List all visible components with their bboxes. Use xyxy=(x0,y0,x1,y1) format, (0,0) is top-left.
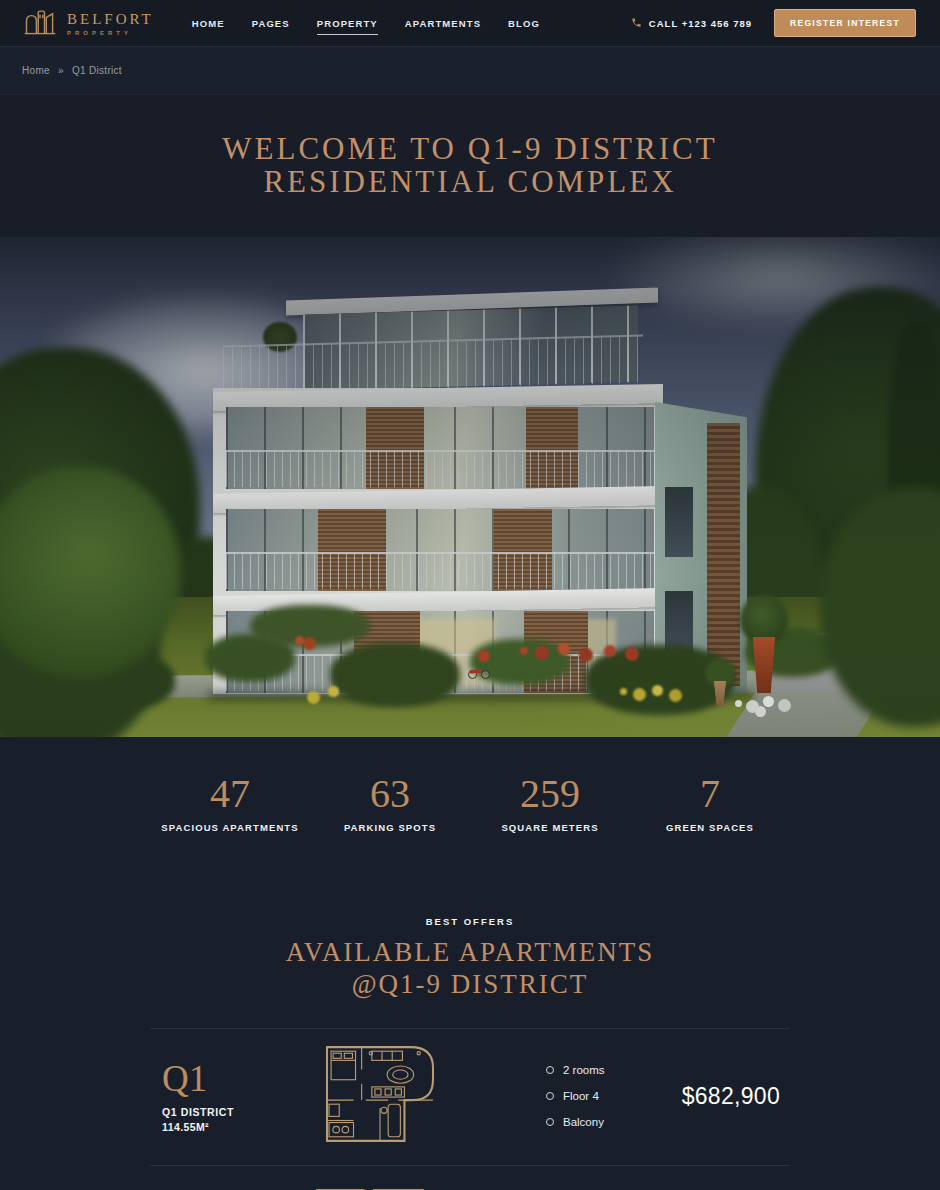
apartment-name: Q1 DISTRICT xyxy=(162,1106,312,1118)
floor-plan-thumbnail[interactable] xyxy=(312,1186,464,1190)
stat-value: 259 xyxy=(470,774,630,814)
apartment-code-link[interactable]: Q1 xyxy=(162,1060,312,1097)
top-navigation-bar: BELFORT PROPERTY HOME PAGES PROPERTY APA… xyxy=(0,0,940,47)
building-hero-image xyxy=(0,237,940,737)
call-label: CALL +123 456 789 xyxy=(649,18,752,29)
phone-icon xyxy=(631,14,642,32)
brand-name: BELFORT xyxy=(67,11,154,28)
breadcrumb-bar: Home » Q1 District xyxy=(0,47,940,95)
feature-item: Balcony xyxy=(546,1116,605,1128)
section-kicker: BEST OFFERS xyxy=(0,916,940,927)
stat-label: SPACIOUS APARTMENTS xyxy=(150,822,310,833)
breadcrumb-home-link[interactable]: Home xyxy=(22,65,50,76)
page-title: WELCOME TO Q1-9 DISTRICT RESIDENTIAL COM… xyxy=(0,132,940,199)
call-phone-link[interactable]: CALL +123 456 789 xyxy=(631,14,752,32)
stat-green-spaces: 7 GREEN SPACES xyxy=(630,774,790,833)
table-row[interactable]: Q1 Q1 DISTRICT 114.55M² xyxy=(150,1029,790,1166)
stat-value: 47 xyxy=(150,774,310,814)
buildings-logo-icon xyxy=(22,5,58,41)
offers-section: BEST OFFERS AVAILABLE APARTMENTS @Q1-9 D… xyxy=(0,870,940,1028)
register-interest-button[interactable]: REGISTER INTEREST xyxy=(774,9,916,37)
page-title-line2: RESIDENTIAL COMPLEX xyxy=(263,164,676,199)
feature-item: Floor 4 xyxy=(546,1090,605,1102)
apartment-features: 2 rooms Floor 4 Balcony xyxy=(546,1064,605,1128)
nav-item-property[interactable]: PROPERTY xyxy=(317,12,378,35)
nav-item-apartments[interactable]: APARTMENTS xyxy=(405,12,481,35)
stat-value: 63 xyxy=(310,774,470,814)
stat-value: 7 xyxy=(630,774,790,814)
stat-spacious-apartments: 47 SPACIOUS APARTMENTS xyxy=(150,774,310,833)
main-nav: HOME PAGES PROPERTY APARTMENTS BLOG xyxy=(192,12,540,35)
brand-tagline: PROPERTY xyxy=(67,30,154,36)
apartment-price: $682,900 xyxy=(682,1083,790,1110)
breadcrumb: Home » Q1 District xyxy=(22,65,127,76)
breadcrumb-current: Q1 District xyxy=(72,65,122,76)
circle-bullet-icon xyxy=(546,1118,554,1126)
photo-dark-overlay xyxy=(0,237,940,737)
page-title-line1: WELCOME TO Q1-9 DISTRICT xyxy=(222,131,717,166)
stat-label: GREEN SPACES xyxy=(630,822,790,833)
breadcrumb-separator: » xyxy=(58,65,64,76)
circle-bullet-icon xyxy=(546,1066,554,1074)
stat-label: PARKING SPOTS xyxy=(310,822,470,833)
feature-label: 2 rooms xyxy=(563,1064,605,1076)
section-title-line2: @Q1-9 DISTRICT xyxy=(352,969,589,999)
stat-square-meters: 259 SQUARE METERS xyxy=(470,774,630,833)
floor-plan-thumbnail[interactable] xyxy=(312,1041,464,1151)
section-title-line1: AVAILABLE APARTMENTS xyxy=(286,937,655,967)
nav-item-blog[interactable]: BLOG xyxy=(508,12,540,35)
feature-label: Floor 4 xyxy=(563,1090,599,1102)
nav-item-pages[interactable]: PAGES xyxy=(252,12,290,35)
feature-item: 2 rooms xyxy=(546,1064,605,1076)
stat-label: SQUARE METERS xyxy=(470,822,630,833)
apartment-area: 114.55M² xyxy=(162,1121,312,1133)
apartment-list: Q1 Q1 DISTRICT 114.55M² xyxy=(150,1028,790,1190)
nav-item-home[interactable]: HOME xyxy=(192,12,225,35)
circle-bullet-icon xyxy=(546,1092,554,1100)
hero-section: WELCOME TO Q1-9 DISTRICT RESIDENTIAL COM… xyxy=(0,95,940,237)
stats-section: 47 SPACIOUS APARTMENTS 63 PARKING SPOTS … xyxy=(0,737,940,870)
feature-label: Balcony xyxy=(563,1116,604,1128)
table-row[interactable] xyxy=(150,1166,790,1190)
section-title: AVAILABLE APARTMENTS @Q1-9 DISTRICT xyxy=(0,937,940,1001)
brand-logo[interactable]: BELFORT PROPERTY xyxy=(22,5,154,41)
stat-parking-spots: 63 PARKING SPOTS xyxy=(310,774,470,833)
